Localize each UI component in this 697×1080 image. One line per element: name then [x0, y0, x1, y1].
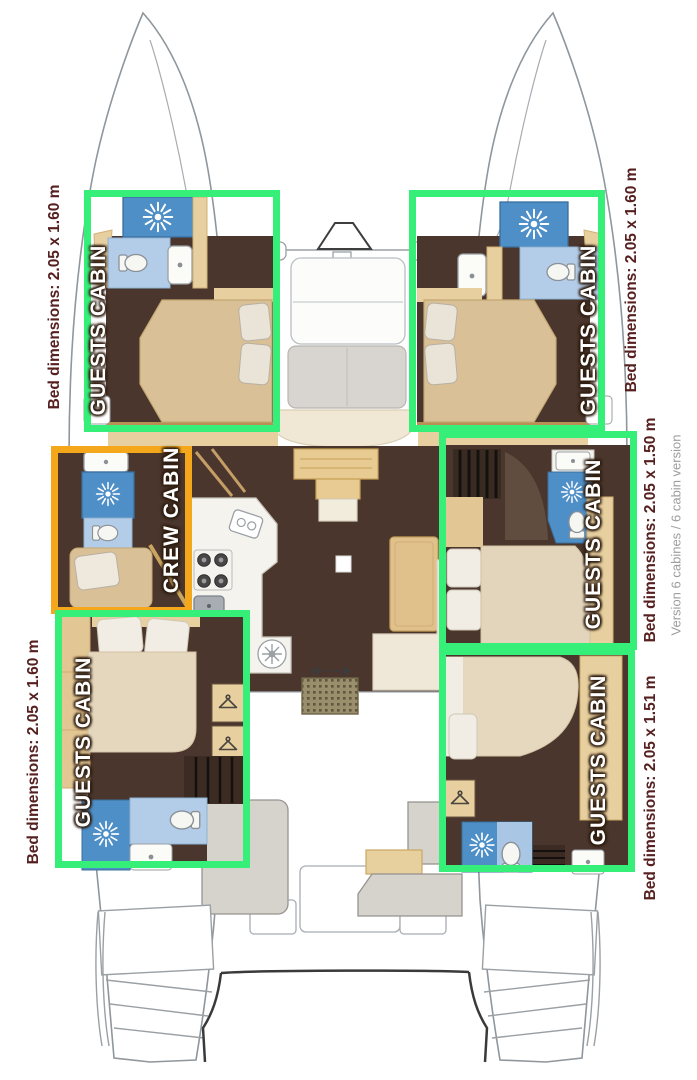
transom-platform — [203, 971, 487, 1062]
pillow — [238, 343, 271, 385]
double-bed — [481, 546, 590, 647]
catamaran-floor-plan — [0, 0, 697, 1080]
cabin-guest-fore-starboard — [417, 202, 612, 432]
saloon-table — [390, 537, 438, 631]
vent-fan-icon — [258, 640, 286, 668]
pillow — [424, 343, 457, 385]
cabin-guest-aft-starboard — [445, 653, 628, 874]
cabin-guest-mid-starboard — [445, 445, 630, 650]
wardrobe — [212, 684, 244, 722]
wardrobe — [445, 780, 475, 817]
pillow — [424, 303, 458, 342]
toilet-icon — [93, 525, 118, 540]
fore-lounge-cushion — [274, 410, 412, 447]
double-bed — [88, 652, 196, 752]
toilet-icon — [170, 811, 199, 829]
toilet-icon — [119, 255, 147, 272]
pillow — [449, 714, 477, 759]
companionway-mat — [302, 678, 358, 714]
pillow — [447, 590, 481, 630]
floor-plan-image: GUESTS CABIN GUESTS CABIN GUESTS CABIN G… — [0, 0, 697, 1080]
pillow — [97, 616, 144, 656]
pillow — [74, 551, 120, 591]
shelf — [586, 396, 612, 424]
cabin-crew — [58, 450, 190, 610]
pillow — [447, 549, 481, 587]
pillow — [238, 303, 272, 342]
stairs — [184, 756, 244, 804]
toilet-icon — [502, 842, 520, 871]
toilet-icon — [547, 264, 575, 281]
toilet-icon — [569, 512, 585, 539]
